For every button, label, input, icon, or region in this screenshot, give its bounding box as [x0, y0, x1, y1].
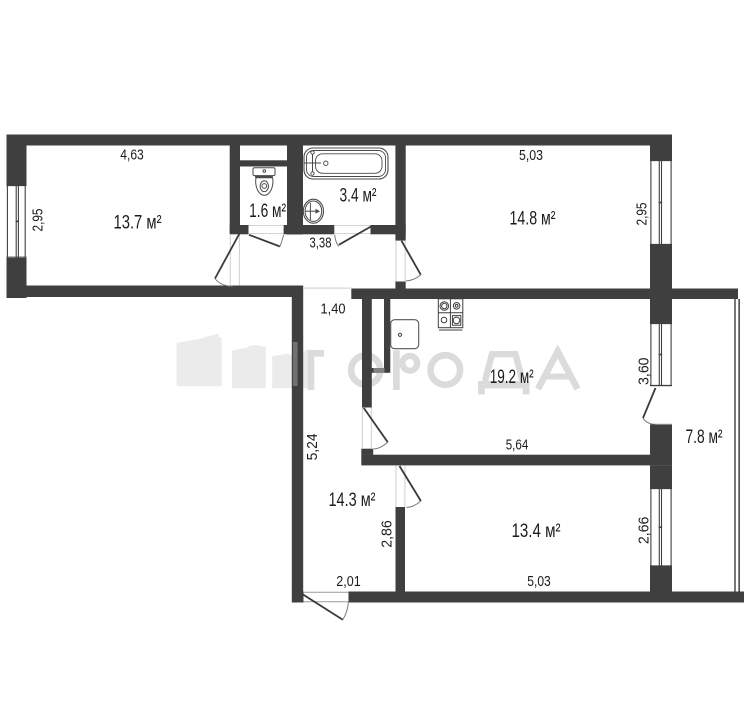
- svg-text:2,66: 2,66: [637, 517, 653, 545]
- svg-text:2,01: 2,01: [336, 574, 360, 590]
- svg-text:14.3 м²: 14.3 м²: [329, 490, 376, 511]
- svg-text:1,40: 1,40: [321, 302, 346, 318]
- svg-text:5,64: 5,64: [506, 437, 529, 453]
- svg-text:3,60: 3,60: [637, 357, 653, 385]
- svg-text:2,95: 2,95: [635, 203, 651, 226]
- svg-text:19.2 м²: 19.2 м²: [490, 367, 534, 388]
- svg-text:5,03: 5,03: [527, 574, 551, 590]
- svg-text:1.6 м²: 1.6 м²: [249, 201, 286, 222]
- svg-text:7.8 м²: 7.8 м²: [686, 427, 723, 448]
- svg-text:13.7 м²: 13.7 м²: [114, 213, 162, 234]
- svg-text:3,38: 3,38: [310, 235, 332, 251]
- svg-text:2,95: 2,95: [31, 209, 47, 232]
- svg-text:4,63: 4,63: [120, 147, 144, 163]
- svg-text:14.8 м²: 14.8 м²: [510, 209, 556, 230]
- svg-text:5,24: 5,24: [305, 433, 321, 460]
- svg-text:3.4 м²: 3.4 м²: [340, 185, 377, 206]
- svg-text:13.4 м²: 13.4 м²: [512, 521, 561, 542]
- svg-text:5,03: 5,03: [519, 148, 543, 164]
- svg-text:2,86: 2,86: [380, 520, 396, 548]
